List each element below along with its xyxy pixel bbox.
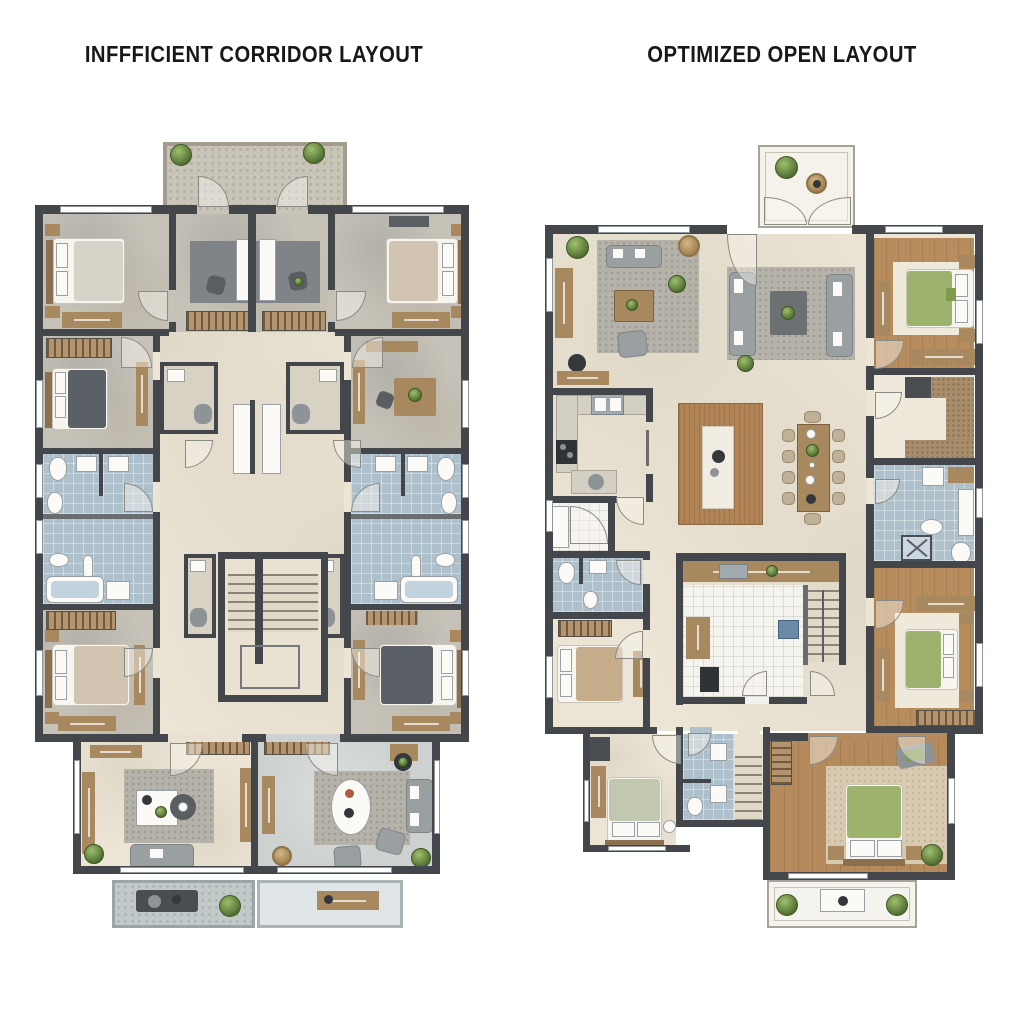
plant — [886, 894, 908, 916]
island-sink — [712, 450, 725, 463]
pantry-door — [552, 506, 569, 548]
counter-wall — [646, 430, 649, 466]
dining-chair — [782, 492, 795, 505]
toilet — [583, 591, 598, 609]
table-plant — [806, 444, 819, 457]
stove — [556, 440, 577, 464]
wall — [676, 553, 683, 705]
dining-chair — [782, 450, 795, 463]
basket-center — [813, 180, 821, 188]
wall — [866, 368, 983, 375]
side-table — [663, 820, 676, 833]
wall — [676, 697, 807, 704]
dining-chair — [782, 471, 795, 484]
window — [546, 656, 553, 698]
bath-shelf — [948, 467, 974, 483]
wall — [549, 551, 650, 558]
pillow — [850, 840, 875, 857]
nightstand — [959, 690, 974, 702]
pillow — [560, 674, 572, 697]
plant — [668, 275, 686, 293]
closet-carpet — [931, 377, 974, 398]
pillow — [612, 822, 635, 837]
sofa-pillow — [634, 248, 646, 259]
dresser — [916, 596, 976, 611]
table-plant — [626, 299, 638, 311]
pillow — [877, 840, 902, 857]
wall — [646, 474, 653, 502]
bench-decor — [838, 896, 848, 906]
counter-plant — [766, 565, 778, 577]
window — [584, 780, 589, 822]
plant — [566, 236, 589, 259]
bath-oval — [920, 519, 943, 535]
appliance — [700, 667, 719, 692]
sofa-pillow — [733, 278, 744, 294]
stair-treads — [735, 756, 762, 820]
wall — [545, 727, 657, 734]
window — [598, 226, 690, 233]
plant — [921, 844, 943, 866]
nightstand — [828, 846, 844, 860]
toilet — [558, 562, 575, 584]
plant — [776, 894, 798, 916]
window — [885, 226, 943, 233]
sofa-pillow — [612, 248, 624, 259]
door-gap — [866, 338, 874, 366]
wall — [866, 458, 983, 465]
table-setting — [805, 475, 815, 485]
door-gap — [643, 630, 650, 658]
door-gap — [745, 697, 769, 704]
sink — [710, 785, 727, 803]
pillow — [955, 274, 968, 297]
cabinet — [590, 737, 610, 761]
sofa-pillow — [733, 330, 744, 346]
wall — [839, 553, 846, 665]
bed-headboard — [843, 859, 905, 866]
armchair — [617, 330, 649, 359]
nightstand — [959, 255, 975, 268]
utility-counter — [681, 561, 843, 582]
wardrobe — [771, 739, 792, 785]
basket — [678, 235, 700, 257]
pillow — [943, 657, 954, 678]
table-setting — [809, 462, 815, 468]
door-gap — [643, 560, 650, 584]
sliding-door — [788, 873, 868, 879]
partition — [579, 558, 583, 584]
window — [948, 778, 955, 824]
dining-chair — [832, 450, 845, 463]
plant — [737, 355, 754, 372]
door-gap — [738, 727, 760, 734]
bed-cushion — [946, 288, 956, 301]
wall — [763, 733, 808, 741]
wall — [608, 503, 615, 558]
patio-plant — [775, 156, 798, 179]
wall — [549, 388, 653, 395]
nightstand — [906, 846, 922, 860]
dining-chair — [782, 429, 795, 442]
pillow — [637, 822, 660, 837]
wall — [763, 727, 770, 880]
pillow — [943, 634, 954, 655]
dresser — [912, 349, 976, 365]
bed-blanket — [906, 631, 941, 688]
sofa-pillow — [832, 281, 843, 297]
table-setting — [806, 429, 816, 439]
sofa-pillow — [832, 331, 843, 347]
pouf — [568, 354, 586, 372]
bed-blanket — [847, 786, 901, 838]
burner — [560, 444, 566, 450]
dresser — [916, 710, 978, 726]
table-plant — [781, 306, 795, 320]
washer — [778, 620, 799, 639]
closet-cabinet — [905, 377, 931, 398]
window — [976, 488, 983, 518]
dining-chair — [832, 471, 845, 484]
window — [546, 258, 553, 312]
pillow — [560, 649, 572, 672]
pillow — [955, 300, 968, 323]
door-gap — [866, 390, 874, 416]
burner — [567, 452, 573, 458]
shower-panel — [958, 489, 974, 536]
island-top — [702, 426, 734, 509]
bed-blanket — [609, 779, 660, 821]
wardrobe — [876, 281, 890, 336]
nightstand — [959, 329, 975, 342]
island-faucet — [710, 468, 719, 477]
stair-wall — [803, 585, 808, 665]
table-setting — [806, 494, 816, 504]
wardrobe — [591, 766, 606, 818]
wardrobe — [876, 648, 890, 702]
plan-optimized-open-layout — [0, 0, 1024, 1024]
partition — [683, 779, 711, 783]
prep-sink — [588, 474, 604, 490]
door-gap — [866, 598, 874, 626]
wall — [549, 612, 650, 619]
sink — [922, 467, 944, 486]
sink — [710, 743, 727, 761]
wall — [866, 561, 983, 568]
closet — [558, 620, 612, 637]
wall — [676, 553, 846, 561]
dining-chair — [832, 492, 845, 505]
stair-rail — [822, 590, 824, 662]
nightstand — [959, 612, 974, 624]
sideboard — [555, 268, 573, 338]
utility-sink — [719, 564, 748, 579]
door-gap — [866, 478, 874, 504]
dining-chair — [832, 429, 845, 442]
window — [546, 500, 553, 532]
floor-plan-comparison: INFFFICIENT CORRIDOR LAYOUT OPTIMIZED OP… — [0, 0, 1024, 1024]
cabinet — [686, 617, 710, 659]
closet-carpet — [905, 440, 974, 458]
dining-chair — [804, 411, 821, 423]
window — [608, 846, 666, 851]
sink — [589, 560, 607, 574]
window — [976, 300, 983, 344]
toilet — [687, 797, 703, 816]
wall — [646, 388, 653, 422]
wall — [676, 820, 770, 827]
wall — [549, 496, 617, 503]
sink-bowl — [609, 397, 622, 412]
console — [557, 371, 609, 385]
dining-chair — [804, 513, 821, 525]
sink-bowl — [594, 397, 607, 412]
window — [976, 643, 983, 687]
